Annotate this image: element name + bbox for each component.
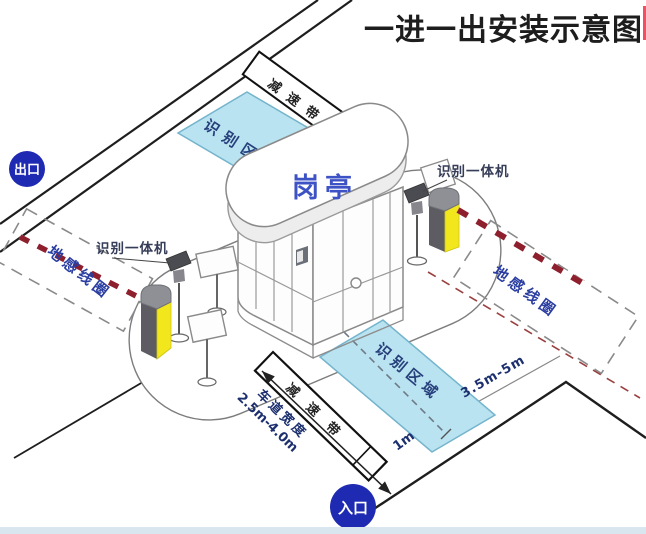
diagram-canvas: 减速带 识别区域 地感线圈 识别区域 地感线圈 减速带	[0, 0, 646, 534]
sign-board-2-base	[198, 378, 216, 386]
booth-label: 岗亭	[292, 172, 358, 204]
installation-diagram: 减速带 识别区域 地感线圈 识别区域 地感线圈 减速带	[0, 0, 646, 534]
page-title: 一进一出安装示意图	[364, 13, 643, 48]
camera-bracket-left	[173, 269, 185, 283]
barrier-right-body	[429, 205, 445, 252]
barrier-right-yellow-face	[445, 204, 459, 252]
camera-pole-base-right	[408, 257, 427, 265]
barrier-left-body	[141, 302, 157, 359]
camera-pole-base-left	[170, 334, 189, 342]
reader-label-right: 识别一体机	[437, 163, 510, 180]
door-handle	[351, 278, 361, 288]
entrance-badge: 入口	[330, 484, 376, 530]
entrance-badge-label: 入口	[338, 499, 368, 517]
bottom-strip	[0, 527, 646, 534]
reader-label-left: 识别一体机	[96, 240, 169, 257]
camera-bracket-right	[411, 201, 423, 215]
booth-interior-monitor-screen	[297, 250, 303, 263]
barrier-machine-left	[141, 285, 171, 359]
exit-badge: 出口	[9, 151, 45, 187]
exit-badge-label: 出口	[14, 162, 40, 178]
